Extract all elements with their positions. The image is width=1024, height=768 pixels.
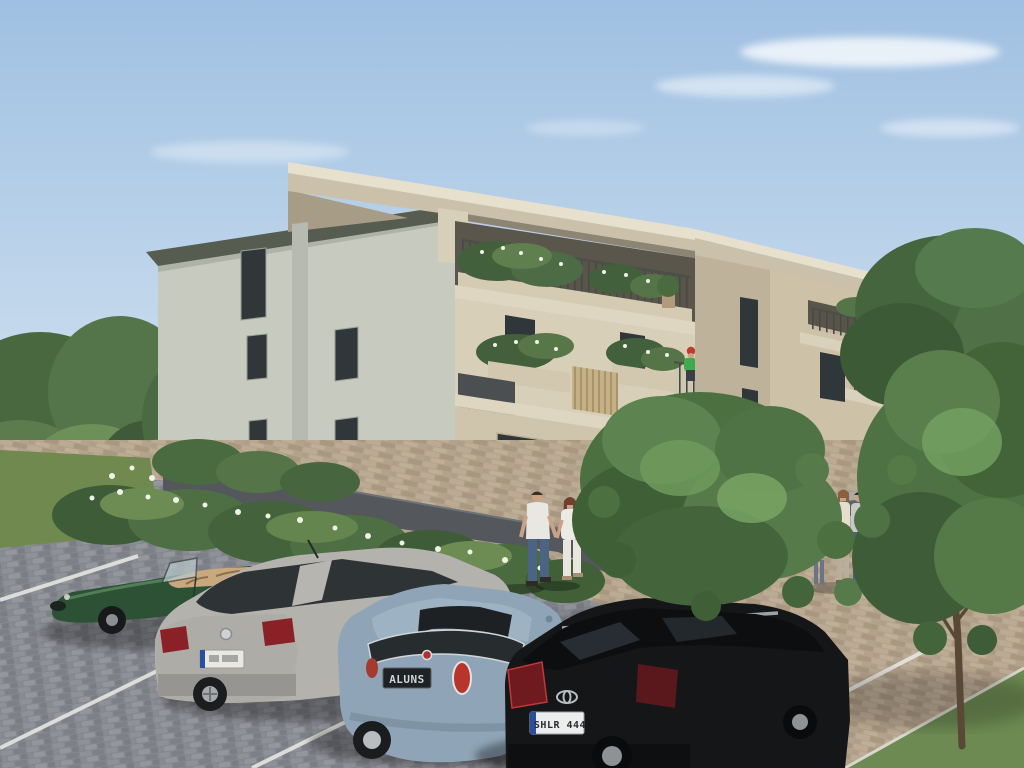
taillight xyxy=(636,664,678,708)
front-grille xyxy=(50,601,66,611)
taillight xyxy=(160,626,189,653)
window xyxy=(740,297,758,368)
taillight xyxy=(262,618,295,646)
license-plate: SHLR 444 xyxy=(530,712,586,734)
taillight xyxy=(453,662,471,694)
taillight xyxy=(508,662,547,708)
wood-slat-screen xyxy=(572,366,618,416)
svg-text:SHLR 444: SHLR 444 xyxy=(534,720,586,731)
rendering-canvas: ALUNS SHLR 444 xyxy=(0,0,1024,768)
license-plate: ALUNS xyxy=(383,668,431,688)
headlight xyxy=(64,594,70,600)
taillight xyxy=(366,658,378,678)
license-plate xyxy=(200,650,244,668)
vw-badge xyxy=(221,629,232,640)
scene: ALUNS SHLR 444 xyxy=(0,0,1024,768)
svg-text:ALUNS: ALUNS xyxy=(389,673,425,686)
fiat-badge xyxy=(423,651,432,660)
side-mirror xyxy=(546,616,553,623)
green-shirt xyxy=(684,358,696,371)
